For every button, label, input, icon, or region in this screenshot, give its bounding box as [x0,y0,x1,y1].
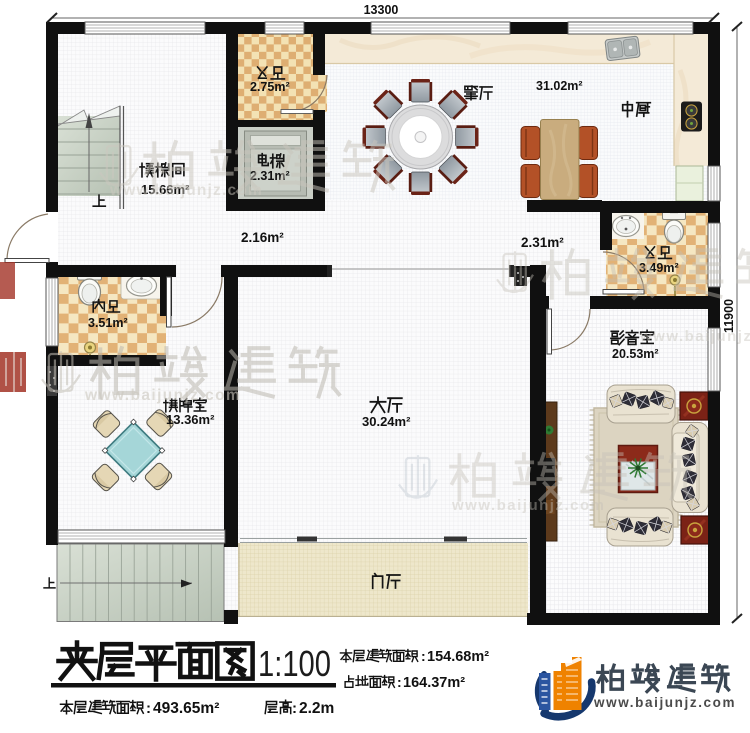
svg-text:2.16m²: 2.16m² [241,230,284,245]
svg-text:164.37m²: 164.37m² [403,675,465,691]
svg-text::: : [146,700,151,717]
svg-text:30.24m²: 30.24m² [362,414,411,429]
svg-text:2.75m²: 2.75m² [250,80,290,94]
svg-text::: : [397,674,402,690]
svg-text:2.2m: 2.2m [299,700,334,717]
svg-text:www.baijunjz.com: www.baijunjz.com [451,497,605,514]
svg-text:3.51m²: 3.51m² [88,316,128,330]
svg-text:20.53m²: 20.53m² [612,347,659,361]
svg-text::: : [292,700,297,717]
svg-text:154.68m²: 154.68m² [427,649,489,665]
svg-text:2.31m²: 2.31m² [521,235,564,250]
svg-text:www.baijunjz.com: www.baijunjz.com [593,695,736,710]
svg-text:493.65m²: 493.65m² [153,700,219,717]
svg-text:13300: 13300 [364,3,399,17]
svg-text:1:100: 1:100 [258,643,331,684]
svg-text:13.36m²: 13.36m² [166,412,215,427]
svg-text:www.baijunjz.com: www.baijunjz.com [639,328,750,345]
svg-text:31.02m²: 31.02m² [536,79,583,93]
svg-text:www.baijunjz.com: www.baijunjz.com [109,182,263,199]
svg-text:www.baijunjz.com: www.baijunjz.com [84,387,241,404]
svg-text::: : [421,648,426,664]
